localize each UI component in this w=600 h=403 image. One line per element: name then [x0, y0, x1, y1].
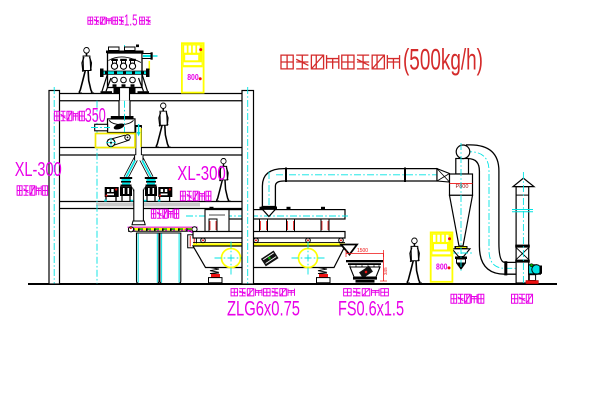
svg-text:1500: 1500	[357, 248, 368, 254]
svg-text:800: 800	[436, 262, 448, 271]
svg-text:1.5: 1.5	[124, 13, 138, 30]
svg-text:XL-300: XL-300	[15, 159, 62, 181]
svg-text:345: 345	[383, 267, 388, 275]
svg-text:(500kg/h): (500kg/h)	[403, 44, 483, 77]
svg-text:XL-300: XL-300	[177, 163, 226, 185]
svg-text:350: 350	[85, 105, 106, 127]
svg-text:800: 800	[187, 73, 199, 82]
svg-text:ZLG6x0.75: ZLG6x0.75	[227, 298, 300, 321]
svg-text:P800: P800	[456, 184, 469, 190]
svg-text:FS0.6x1.5: FS0.6x1.5	[338, 298, 404, 321]
